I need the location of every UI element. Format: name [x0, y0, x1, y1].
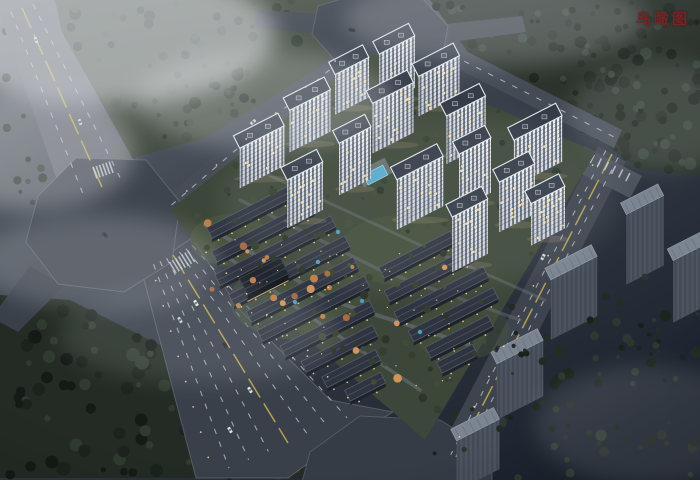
- view-label: 鸟瞰图: [636, 8, 690, 29]
- scene-svg: [0, 0, 700, 480]
- pond: [418, 330, 422, 334]
- aerial-rendering: 鸟瞰图: [0, 0, 700, 480]
- pond: [360, 299, 364, 303]
